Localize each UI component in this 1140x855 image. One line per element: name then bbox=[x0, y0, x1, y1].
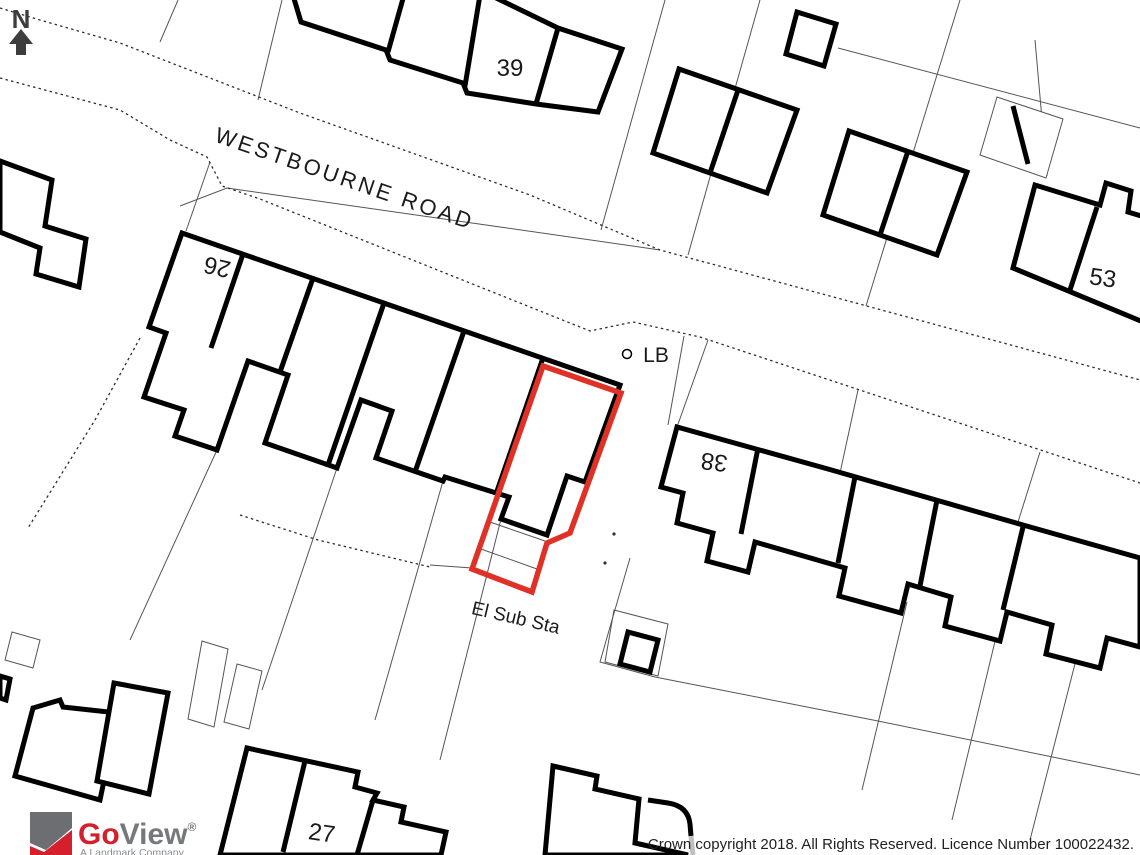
building-39-terrace bbox=[292, 0, 622, 112]
parcel-line bbox=[160, 0, 178, 42]
parcel-line bbox=[430, 565, 472, 568]
site-plan-map: WESTBOURNE ROAD 39 53 26 38 27 LB El Sub… bbox=[0, 0, 1140, 855]
road-name-label: WESTBOURNE ROAD bbox=[212, 122, 478, 234]
parcel-line bbox=[375, 481, 443, 720]
building bbox=[0, 161, 86, 287]
parcel-line bbox=[262, 468, 337, 690]
house-number-53: 53 bbox=[1088, 263, 1118, 293]
letterbox-symbol bbox=[623, 350, 632, 359]
substation-label: El Sub Sta bbox=[470, 598, 563, 639]
parcel-line bbox=[838, 48, 1140, 128]
parcel-line bbox=[440, 519, 501, 760]
building-edge bbox=[648, 800, 691, 836]
parcel-line bbox=[668, 336, 684, 425]
map-dot bbox=[612, 532, 615, 535]
building bbox=[786, 12, 836, 66]
building-38-terrace bbox=[661, 427, 1140, 668]
parcel-line bbox=[677, 340, 708, 427]
parcel-line bbox=[130, 450, 217, 640]
parcel-line bbox=[186, 162, 210, 231]
parcel-line bbox=[1018, 452, 1040, 522]
buildings bbox=[0, 0, 1140, 855]
parcel-line bbox=[952, 633, 997, 820]
shed bbox=[188, 641, 228, 727]
building bbox=[0, 676, 10, 700]
boundary-dashed bbox=[28, 338, 140, 528]
parcel-line bbox=[862, 602, 907, 790]
building-53 bbox=[1013, 183, 1140, 324]
substation-building bbox=[620, 632, 658, 672]
registered-mark-icon: ® bbox=[188, 820, 197, 834]
house-number-39: 39 bbox=[497, 55, 524, 82]
north-arrow: N bbox=[9, 4, 33, 55]
parcel-line bbox=[840, 390, 858, 473]
shed bbox=[224, 664, 262, 729]
house-number-38: 38 bbox=[699, 446, 729, 476]
letterbox-label: LB bbox=[643, 344, 669, 367]
parcel-line bbox=[601, 0, 665, 230]
goview-logo: GoView® A Landmark Company bbox=[30, 812, 197, 855]
parcel-line bbox=[1030, 652, 1078, 840]
parcel-line bbox=[258, 0, 282, 100]
map-dot bbox=[603, 561, 606, 564]
logo-tagline: A Landmark Company bbox=[80, 847, 185, 855]
building bbox=[97, 683, 168, 794]
house-number-27: 27 bbox=[307, 818, 337, 848]
copyright-notice: Crown copyright 2018. All Rights Reserve… bbox=[648, 836, 1134, 853]
shed bbox=[5, 632, 40, 668]
boundary-dashed bbox=[240, 515, 430, 567]
